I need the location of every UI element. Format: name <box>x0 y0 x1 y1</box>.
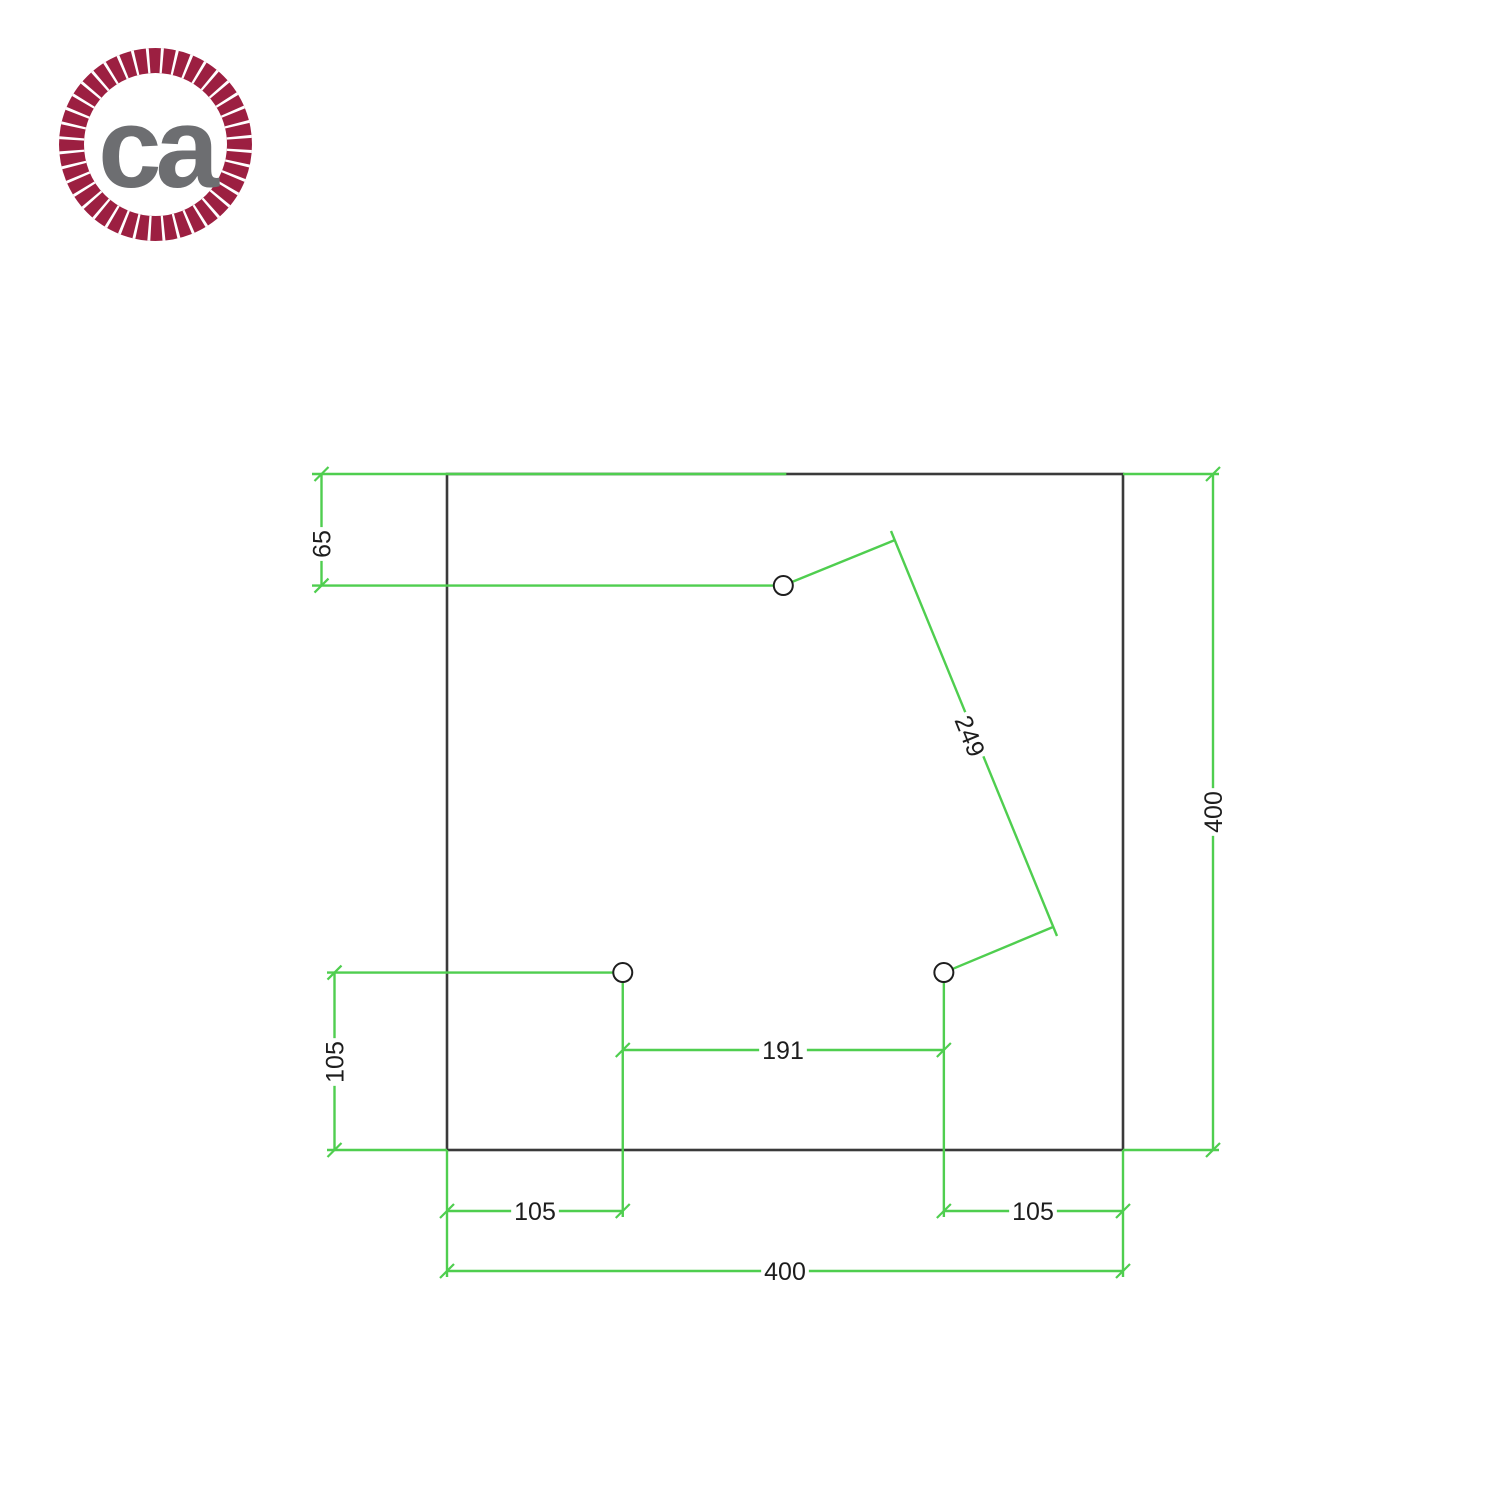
dimension-label-plate-width: 400 <box>764 1258 806 1286</box>
dimension-label-group: 105 <box>321 1038 349 1086</box>
dimension-label-group: 105 <box>511 1198 559 1226</box>
dimension-label-right-hole-from-right: 105 <box>1012 1198 1054 1226</box>
dimension-label-plate-height: 400 <box>1200 791 1228 833</box>
dimension-label-left-hole-from-left: 105 <box>514 1198 556 1226</box>
cable-hole-top <box>774 576 793 595</box>
dimension-label-top-hole-offset: 65 <box>308 530 336 558</box>
technical-drawing: 65105191105105400400249 <box>0 0 1500 1500</box>
dimension-label-bottom-hole-offset: 105 <box>321 1041 349 1083</box>
dimension-label-group: 400 <box>761 1258 809 1286</box>
leader-diagonal-top <box>783 540 895 586</box>
cable-hole-bottom-right <box>934 963 953 982</box>
cable-hole-bottom-left <box>613 963 632 982</box>
dimension-label-group: 65 <box>308 527 336 561</box>
product-dimension-sheet: ca 65105191105105400400249 <box>0 0 1500 1500</box>
dimension-label-hole-spacing: 191 <box>762 1037 804 1065</box>
dimension-label-group: 249 <box>947 709 991 764</box>
dimension-label-group: 105 <box>1009 1198 1057 1226</box>
leader-diagonal-bottom <box>944 927 1053 973</box>
dimension-label-group: 400 <box>1200 788 1228 836</box>
dimension-label-group: 191 <box>759 1037 807 1065</box>
